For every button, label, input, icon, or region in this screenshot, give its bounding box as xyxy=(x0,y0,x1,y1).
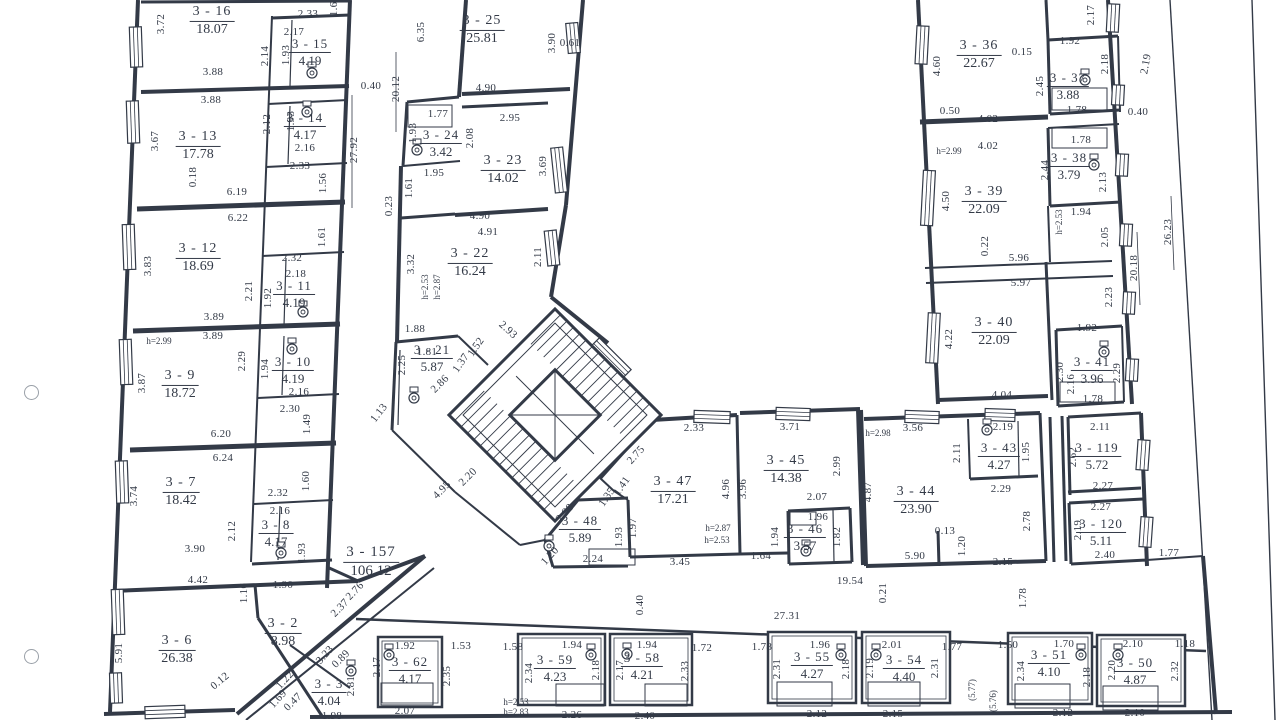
dimension-label: 1.78 xyxy=(752,641,772,653)
dimension-label: 2.18 xyxy=(286,268,306,280)
dimension-label: 2.17 xyxy=(1085,5,1097,25)
dimension-label: 3.32 xyxy=(405,254,417,274)
dimension-label: 1.61 xyxy=(316,227,328,247)
dimension-label: 4.87 xyxy=(862,482,874,502)
dimension-label: 6.19 xyxy=(227,186,247,198)
dimension-label: 1.77 xyxy=(428,108,448,120)
dimension-label: 2.81 xyxy=(345,676,357,696)
dimension-label: 2.33 xyxy=(679,661,691,681)
room-label-3-39: 3 - 3922.09 xyxy=(962,185,1007,217)
dimension-label: 1.60 xyxy=(300,471,312,491)
dimension-label: 3.90 xyxy=(546,33,558,53)
dimension-label: 2.07 xyxy=(395,705,415,717)
dimension-label: 5.97 xyxy=(1011,277,1031,289)
dimension-label: (5.77) xyxy=(967,679,977,701)
dimension-label: 2.01 xyxy=(882,639,902,651)
dimension-label: 2.16 xyxy=(1065,374,1077,394)
dimension-label: 2.29 xyxy=(1111,363,1123,383)
dimension-label: 1.88 xyxy=(405,323,425,335)
dimension-label: 4.96 xyxy=(720,479,732,499)
dimension-label: 1.58 xyxy=(503,641,523,653)
dimension-label: 2.86 xyxy=(429,373,452,396)
dimension-label: 2.19 xyxy=(864,658,876,678)
dimension-label: 2.35 xyxy=(441,666,453,686)
dimension-label: 2.95 xyxy=(500,112,520,124)
dimension-label: 4.02 xyxy=(978,113,998,125)
room-label-3-59: 3 - 594.23 xyxy=(534,653,576,683)
dimension-label: 2.17 xyxy=(371,657,383,677)
dimension-label: 2.33 xyxy=(298,8,318,20)
room-label-3-8: 3 - 84.17 xyxy=(259,518,294,548)
dimension-label: (5.76) xyxy=(988,690,998,712)
dimension-label: 2.11 xyxy=(532,247,544,267)
dimension-label: 2.11 xyxy=(951,443,963,463)
punch-hole-icon xyxy=(24,385,39,400)
dimension-label: 2.44 xyxy=(1039,160,1051,180)
dimension-label: 4.60 xyxy=(931,56,943,76)
dimension-label: 4.95 xyxy=(431,479,454,502)
dimension-label: 0.40 xyxy=(1128,106,1148,118)
dimension-label: 2.27 xyxy=(1093,480,1113,492)
dimension-label: 6.20 xyxy=(211,428,231,440)
dimension-label: 2.18 xyxy=(1081,667,1093,687)
dimension-label: 1.50 xyxy=(998,639,1018,651)
dimension-label: 1.56 xyxy=(317,173,329,193)
dimension-label: 2.08 xyxy=(464,128,476,148)
dimension-label: 1.93 xyxy=(407,123,419,143)
dimension-label: 3.45 xyxy=(670,556,690,568)
dimension-label: 0.15 xyxy=(1012,46,1032,58)
room-label-3-50: 3 - 504.87 xyxy=(1114,656,1156,686)
dimension-label: 3.89 xyxy=(203,330,223,342)
dimension-label: 3.69 xyxy=(537,156,549,176)
dimension-label: h=2.53 xyxy=(704,535,729,545)
dimension-label: 1.94 xyxy=(259,359,271,379)
dimension-label: 2.14 xyxy=(259,46,271,66)
room-label-3-43: 3 - 434.27 xyxy=(978,441,1020,471)
dimension-label: 3.88 xyxy=(201,94,221,106)
dimension-label: 1.61 xyxy=(403,178,415,198)
dimension-label: 2.27 xyxy=(1091,501,1111,513)
dimension-label: 2.07 xyxy=(807,491,827,503)
room-label-3-119: 3 - 1195.72 xyxy=(1072,441,1121,471)
dimension-label: 1.93 xyxy=(296,543,308,563)
room-label-3-40: 3 - 4022.09 xyxy=(972,316,1017,348)
dimension-label: 1.16 xyxy=(238,583,250,603)
room-label-3-15: 3 - 154.19 xyxy=(289,37,331,67)
room-label-3-47: 3 - 4717.21 xyxy=(651,475,696,507)
room-label-3-16: 3 - 1618.07 xyxy=(190,5,235,37)
dimension-label: 0.21 xyxy=(877,583,889,603)
dimension-label: 2.16 xyxy=(289,386,309,398)
dimension-label: 2.32 xyxy=(282,252,302,264)
dimension-label: 1.96 xyxy=(810,639,830,651)
dimension-label: 2.10 xyxy=(1123,638,1143,650)
room-label-3-22: 3 - 2216.24 xyxy=(448,247,493,279)
dimension-label: h=2.87 xyxy=(432,274,442,299)
dimension-label: 1.92 xyxy=(262,288,274,308)
dimension-label: 5.96 xyxy=(1009,252,1029,264)
dimension-label: h=2.83 xyxy=(503,707,528,717)
dimension-label: 2.20 xyxy=(1106,660,1118,680)
labels-layer: 3 - 1618.073 - 154.193 - 1317.783 - 144.… xyxy=(0,0,1280,720)
dimension-label: 1.94 xyxy=(769,527,781,547)
dimension-label: 1.70 xyxy=(1054,638,1074,650)
dimension-label: 0.22 xyxy=(979,236,991,256)
dimension-label: 2.11 xyxy=(1090,421,1110,433)
dimension-label: 2.18 xyxy=(590,660,602,680)
room-label-3-11: 3 - 114.19 xyxy=(273,279,315,309)
dimension-label: 1.96 xyxy=(808,511,828,523)
dimension-label: 2.13 xyxy=(1097,172,1109,192)
room-label-3-13: 3 - 1317.78 xyxy=(176,130,221,162)
room-label-3-25: 3 - 2525.81 xyxy=(460,14,505,46)
room-label-3-9: 3 - 918.72 xyxy=(162,369,199,401)
dimension-label: 1.77 xyxy=(942,641,962,653)
dimension-label: h=2.53 xyxy=(420,274,430,299)
dimension-label: 2.75 xyxy=(625,443,648,466)
room-label-3-41: 3 - 413.96 xyxy=(1071,355,1113,385)
dimension-label: 1.94 xyxy=(637,639,657,651)
dimension-label: 2.05 xyxy=(1099,227,1111,247)
dimension-label: 0.40 xyxy=(361,80,381,92)
room-label-3-62: 3 - 624.17 xyxy=(389,655,431,685)
room-label-3-46: 3 - 463.57 xyxy=(784,522,826,552)
dimension-label: 4.90 xyxy=(476,82,496,94)
dimension-label: 3.72 xyxy=(155,14,167,34)
dimension-label: 2.15 xyxy=(883,708,903,720)
dimension-label: 2.29 xyxy=(236,351,248,371)
dimension-label: 4.90 xyxy=(470,210,490,222)
dimension-label: 2.18 xyxy=(1099,54,1111,74)
dimension-label: 1.78 xyxy=(1067,104,1087,116)
dimension-label: 1.93 xyxy=(613,527,625,547)
dimension-label: 1.92 xyxy=(1077,322,1097,334)
dimension-label: 1.90 xyxy=(273,579,293,591)
dimension-label: 1.13 xyxy=(368,401,390,425)
dimension-label: 3.88 xyxy=(203,66,223,78)
dimension-label: 2.17 xyxy=(284,26,304,38)
dimension-label: 2.19 xyxy=(1072,520,1084,540)
dimension-label: 1.78 xyxy=(1071,134,1091,146)
room-label-3-38: 3 - 383.79 xyxy=(1048,151,1090,181)
dimension-label: 2.17 xyxy=(614,660,626,680)
dimension-label: 3.74 xyxy=(128,486,140,506)
dimension-label: 2.40 xyxy=(635,710,655,720)
dimension-label: 4.02 xyxy=(978,140,998,152)
dimension-label: 2.33 xyxy=(290,160,310,172)
dimension-label: 20.18 xyxy=(1128,255,1140,281)
room-label-3-58: 3 - 584.21 xyxy=(621,651,663,681)
dimension-label: 2.16 xyxy=(270,505,290,517)
dimension-label: h=2.99 xyxy=(936,146,961,156)
dimension-label: h=2.98 xyxy=(865,428,890,438)
dimension-label: 3.56 xyxy=(903,422,923,434)
dimension-label: 2.32 xyxy=(268,487,288,499)
dimension-label: 2.30 xyxy=(280,403,300,415)
dimension-label: 19.54 xyxy=(837,575,863,587)
dimension-label: 6.22 xyxy=(228,212,248,224)
dimension-label: 2.34 xyxy=(1015,661,1027,681)
dimension-label: 4.42 xyxy=(188,574,208,586)
dimension-label: 1.77 xyxy=(1159,547,1179,559)
room-label-3-51: 3 - 514.10 xyxy=(1028,648,1070,678)
dimension-label: 2.12 xyxy=(261,114,273,134)
dimension-label: h=2.99 xyxy=(146,336,171,346)
dimension-label: 2.20 xyxy=(457,466,480,489)
dimension-label: 1.20 xyxy=(956,536,968,556)
dimension-label: h=2.87 xyxy=(705,523,730,533)
room-label-3-54: 3 - 544.40 xyxy=(883,653,925,683)
dimension-label: 2.31 xyxy=(929,658,941,678)
dimension-label: 2.29 xyxy=(991,483,1011,495)
room-label-3-55: 3 - 554.27 xyxy=(791,650,833,680)
dimension-label: 20.12 xyxy=(390,76,402,102)
room-label-3-37: 3 - 373.88 xyxy=(1047,71,1089,101)
dimension-label: 1.92 xyxy=(395,640,415,652)
dimension-label: 1.94 xyxy=(562,639,582,651)
dimension-label: 0.61 xyxy=(560,37,580,49)
dimension-label: 1.93 xyxy=(280,45,292,65)
dimension-label: 1.97 xyxy=(627,518,639,538)
dimension-label: 2.10 xyxy=(1125,707,1145,719)
dimension-label: 2.93 xyxy=(496,319,519,342)
dimension-label: 2.12 xyxy=(226,521,238,541)
dimension-label: 2.76 xyxy=(344,579,367,602)
dimension-label: 3.89 xyxy=(204,311,224,323)
room-label-3-3: 3 - 34.04 xyxy=(312,677,347,707)
room-label-3-44: 3 - 4423.90 xyxy=(894,485,939,517)
dimension-label: 0.23 xyxy=(383,196,395,216)
dimension-label: 4.91 xyxy=(478,226,498,238)
dimension-label: 2.33 xyxy=(684,422,704,434)
dimension-label: 2.23 xyxy=(1103,287,1115,307)
room-label-3-2: 3 - 28.98 xyxy=(265,617,302,649)
dimension-label: 3.87 xyxy=(136,373,148,393)
dimension-label: 1.18 xyxy=(1175,638,1195,650)
room-label-3-10: 3 - 104.19 xyxy=(272,355,314,385)
dimension-label: 1.78 xyxy=(1017,588,1029,608)
dimension-label: 5.91 xyxy=(113,643,125,663)
dimension-label: 6.35 xyxy=(415,22,427,42)
dimension-label: 5.90 xyxy=(905,550,925,562)
dimension-label: 2.24 xyxy=(583,553,603,565)
dimension-label: 3.96 xyxy=(737,479,749,499)
dimension-label: 0.13 xyxy=(935,525,955,537)
dimension-label: 0.18 xyxy=(187,167,199,187)
dimension-label: 1.49 xyxy=(301,414,313,434)
dimension-label: 27.92 xyxy=(348,137,360,163)
dimension-label: 2.15 xyxy=(993,556,1013,568)
dimension-label: 1.93 xyxy=(285,111,297,131)
dimension-label: 1.78 xyxy=(1083,393,1103,405)
dimension-label: 2.21 xyxy=(243,281,255,301)
dimension-label: 2.34 xyxy=(523,663,535,683)
dimension-label: h=2.53 xyxy=(503,697,528,707)
room-label-3-12: 3 - 1218.69 xyxy=(176,242,221,274)
room-label-3-36: 3 - 3622.67 xyxy=(957,39,1002,71)
room-label-3-6: 3 - 626.38 xyxy=(159,634,196,666)
room-label-3-157: 3 - 157106.12 xyxy=(343,545,399,579)
dimension-label: 2.19 xyxy=(1138,53,1153,75)
dimension-label: 2.37 xyxy=(329,596,352,619)
room-label-3-24: 3 - 243.42 xyxy=(420,128,462,158)
dimension-label: 2.62 xyxy=(1067,447,1079,467)
floor-plan: 3 - 1618.073 - 154.193 - 1317.783 - 144.… xyxy=(0,0,1280,720)
dimension-label: 26.23 xyxy=(1162,219,1174,245)
dimension-label: 4.50 xyxy=(940,191,952,211)
punch-hole-icon xyxy=(24,649,39,664)
dimension-label: 1.61 xyxy=(328,0,340,16)
dimension-label: 1.53 xyxy=(451,640,471,652)
dimension-label: 2.45 xyxy=(1034,76,1046,96)
dimension-label: 0.12 xyxy=(208,670,231,692)
dimension-label: 2.19 xyxy=(993,421,1013,433)
room-label-3-7: 3 - 718.42 xyxy=(163,476,200,508)
dimension-label: 3.71 xyxy=(780,421,800,433)
dimension-label: 1.92 xyxy=(1060,35,1080,47)
dimension-label: 2.40 xyxy=(1095,549,1115,561)
dimension-label: 2.32 xyxy=(1169,661,1181,681)
dimension-label: 1.98 xyxy=(322,710,342,720)
dimension-label: 2.25 xyxy=(396,355,408,375)
dimension-label: 27.31 xyxy=(774,610,800,622)
dimension-label: 6.24 xyxy=(213,452,233,464)
dimension-label: 1.22 xyxy=(274,668,297,691)
dimension-label: 2.16 xyxy=(295,142,315,154)
dimension-label: 2.18 xyxy=(840,659,852,679)
dimension-label: 1.95 xyxy=(424,167,444,179)
dimension-label: 1.94 xyxy=(1071,206,1091,218)
dimension-label: 0.50 xyxy=(940,105,960,117)
dimension-label: 1.95 xyxy=(1020,442,1032,462)
room-label-3-45: 3 - 4514.38 xyxy=(764,454,809,486)
dimension-label: 1.64 xyxy=(751,550,771,562)
dimension-label: 0.40 xyxy=(634,595,646,615)
dimension-label: 2.99 xyxy=(831,456,843,476)
dimension-label: 2.26 xyxy=(562,709,582,720)
dimension-label: 1.72 xyxy=(692,642,712,654)
dimension-label: 2.12 xyxy=(1053,707,1073,719)
dimension-label: 3.90 xyxy=(185,543,205,555)
dimension-label: 1.20 xyxy=(539,544,562,567)
dimension-label: 1.81 xyxy=(417,346,437,358)
dimension-label: 4.04 xyxy=(992,389,1012,401)
dimension-label: 1.82 xyxy=(831,527,843,547)
dimension-label: 3.67 xyxy=(149,131,161,151)
dimension-label: 2.12 xyxy=(807,708,827,720)
dimension-label: 2.31 xyxy=(771,659,783,679)
dimension-label: 4.22 xyxy=(943,329,955,349)
dimension-label: h=2.53 xyxy=(1054,209,1064,234)
dimension-label: 3.83 xyxy=(142,256,154,276)
dimension-label: 2.78 xyxy=(1021,511,1033,531)
room-label-3-23: 3 - 2314.02 xyxy=(481,154,526,186)
